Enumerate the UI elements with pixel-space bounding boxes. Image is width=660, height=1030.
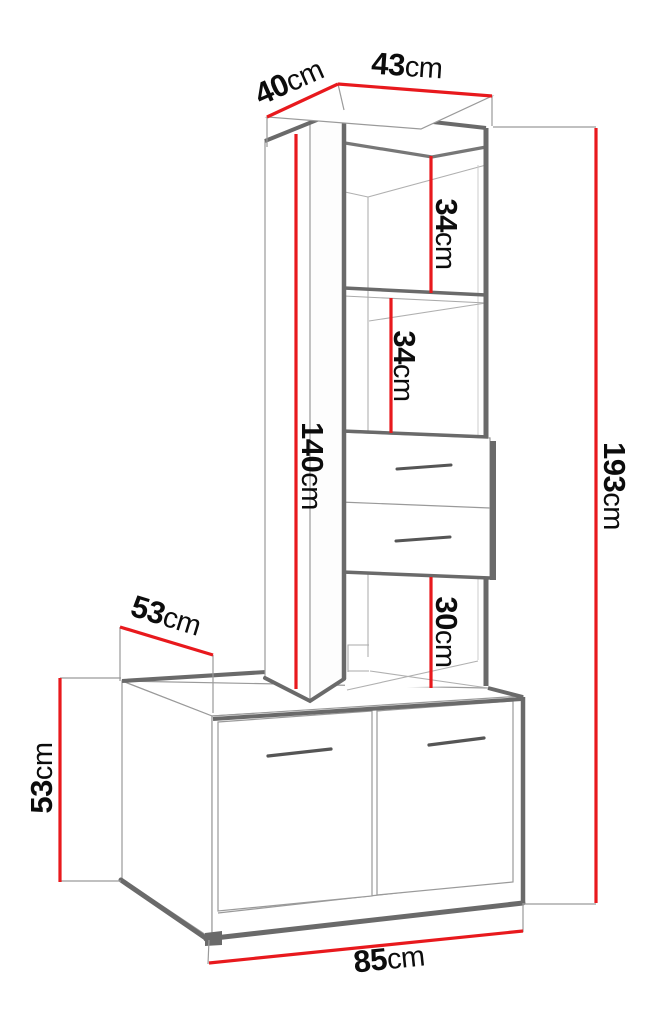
base-left-face: [122, 681, 212, 939]
dim-unit: cm: [27, 742, 59, 780]
dim-value: 34: [429, 198, 464, 231]
dim-value: 140: [295, 422, 330, 472]
dim-value: 30: [429, 596, 464, 629]
dim-value: 193: [597, 442, 632, 492]
dim-value: 34: [387, 330, 422, 363]
tall-unit-interior: [345, 130, 486, 688]
dim-unit: cm: [295, 472, 327, 510]
base-door-left: [218, 711, 372, 911]
tall-panel: [265, 108, 345, 701]
dim-unit: cm: [404, 51, 444, 86]
furniture-dimension-diagram: 40cm 43cm 34cm 34cm 140cm 193cm 30cm 53c…: [0, 0, 660, 1030]
dim-label-total-height: 193cm: [598, 442, 630, 530]
dim-value: 85: [352, 941, 389, 979]
base-back-edge: [122, 672, 266, 681]
drawing-svg: [0, 0, 660, 1030]
base-door-right: [377, 701, 513, 895]
dim-label-shelf-gap-upper: 34cm: [430, 198, 462, 269]
dim-value: 43: [370, 46, 406, 83]
panel-front-face: [265, 122, 310, 701]
panel-side-face: [310, 108, 345, 701]
dim-label-base-height: 53cm: [26, 742, 58, 813]
dim-unit: cm: [429, 232, 461, 270]
dim-label-top-width: 43cm: [370, 48, 443, 85]
drawer-box: [340, 431, 493, 580]
dim-label-base-width: 85cm: [352, 939, 426, 978]
base-foot: [205, 931, 222, 946]
dim-unit: cm: [597, 492, 629, 530]
dim-unit: cm: [429, 630, 461, 668]
dim-unit: cm: [385, 940, 426, 976]
dim-unit: cm: [387, 364, 419, 402]
dim-label-tall-unit-height: 140cm: [296, 422, 328, 510]
base-cabinet: [121, 672, 523, 946]
dim-value: 53: [24, 780, 59, 813]
dim-label-open-space: 30cm: [430, 596, 462, 667]
dim-label-shelf-gap-lower: 34cm: [388, 330, 420, 401]
